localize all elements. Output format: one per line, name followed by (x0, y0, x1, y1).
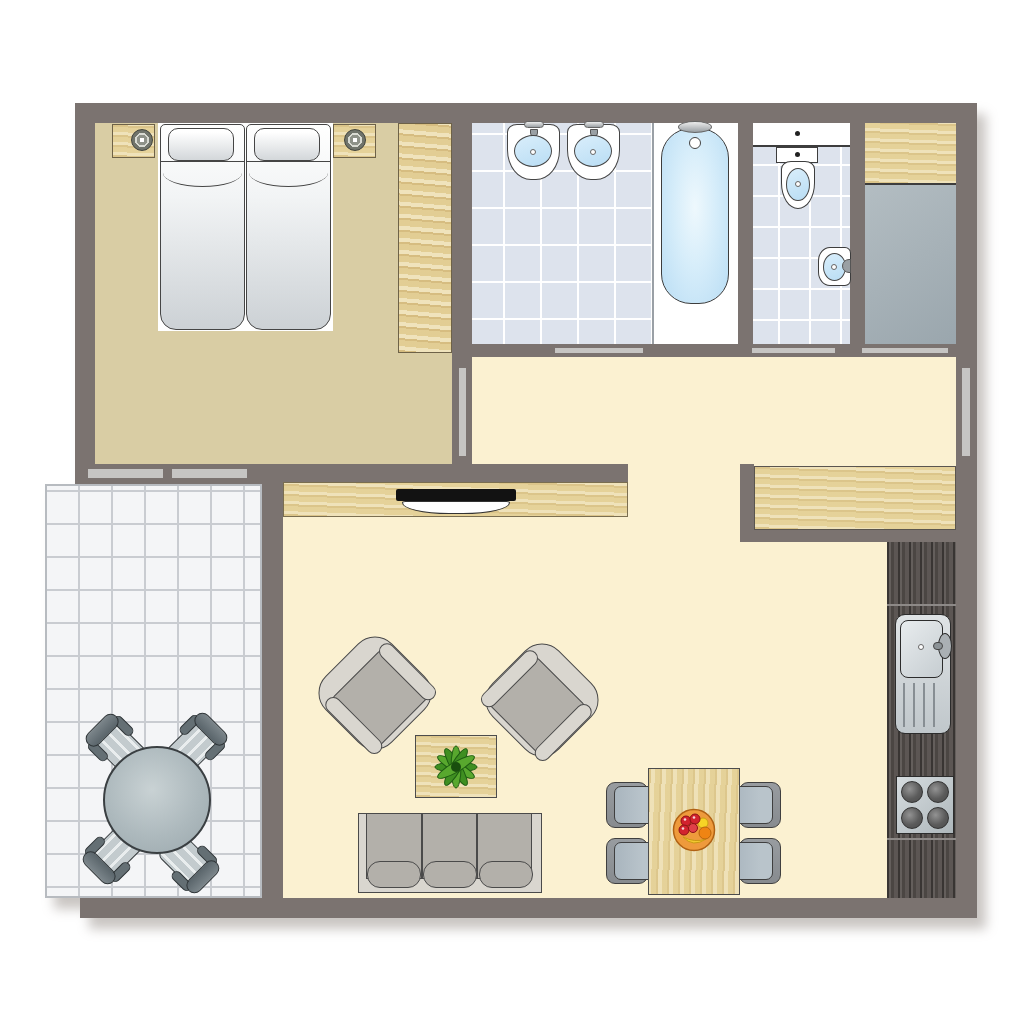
washbasin-2-drain (590, 149, 596, 155)
washbasin-2 (567, 124, 620, 180)
tv (396, 489, 516, 501)
bathtub (661, 128, 729, 304)
toilet-drain (795, 181, 801, 187)
wall-wc-storage (850, 123, 865, 344)
terrace-round-table (103, 746, 211, 854)
wc-shelf (753, 123, 850, 147)
washbasin-1 (507, 124, 560, 180)
wall-bottom (80, 898, 977, 918)
kitchen-sink-unit (895, 614, 951, 734)
wardrobe (398, 123, 452, 353)
stove-burner-3 (901, 807, 923, 829)
hallway-window (962, 368, 970, 456)
stove-burner-4 (927, 807, 949, 829)
storage-door (862, 348, 948, 353)
bidet-tap (842, 259, 851, 273)
stove-burner-2 (927, 781, 949, 803)
washbasin-1-faucet (524, 121, 544, 128)
kitchen-faucet-lever (933, 642, 943, 650)
wc-shelf-knob (795, 131, 800, 136)
bathtub-faucet (678, 121, 712, 133)
sofa (358, 813, 542, 893)
wall-terrace-living (262, 484, 283, 898)
bedroom-terrace-window-2 (172, 469, 247, 478)
fruit-bowl (672, 808, 716, 852)
floor-plan-canvas (0, 0, 1024, 1024)
stove-burner-1 (901, 781, 923, 803)
kitchen-sink-drainboard (903, 683, 943, 727)
wall-bathroom-wc (738, 123, 753, 344)
bathroom-floor (472, 123, 652, 344)
bidet-drain (831, 264, 837, 270)
pillow-right (254, 128, 320, 161)
kitchen-sink-drain (918, 644, 924, 650)
wall-right (956, 103, 977, 918)
storage-floor (865, 185, 956, 344)
kitchen-counter-divider-1 (887, 604, 956, 606)
stove (896, 776, 954, 834)
table-lamp-left (131, 129, 153, 151)
wall-left (75, 103, 95, 484)
bedroom-door (459, 368, 466, 456)
potted-plant (432, 743, 480, 791)
sofa-seat-cushion-1 (367, 861, 421, 888)
wall-hall-nook-horizontal (740, 530, 956, 542)
pillow-left (168, 128, 234, 161)
wc-door (752, 348, 835, 353)
hallway-counter (754, 466, 956, 530)
bedroom-terrace-window-1 (88, 469, 163, 478)
sofa-seat-cushion-3 (479, 861, 533, 888)
sofa-back-divider-1 (421, 813, 423, 879)
table-lamp-right (344, 129, 366, 151)
toilet-tank-button (795, 152, 800, 157)
sofa-seat-cushion-2 (423, 861, 477, 888)
bathroom-door (555, 348, 643, 353)
kitchen-counter-divider-2 (887, 838, 956, 840)
washbasin-1-drain (530, 149, 536, 155)
bathtub-drain (689, 137, 701, 149)
washbasin-2-faucet (584, 121, 604, 128)
storage-shelf (865, 123, 956, 185)
floor-plan (0, 0, 1024, 1024)
wall-top (75, 103, 977, 123)
